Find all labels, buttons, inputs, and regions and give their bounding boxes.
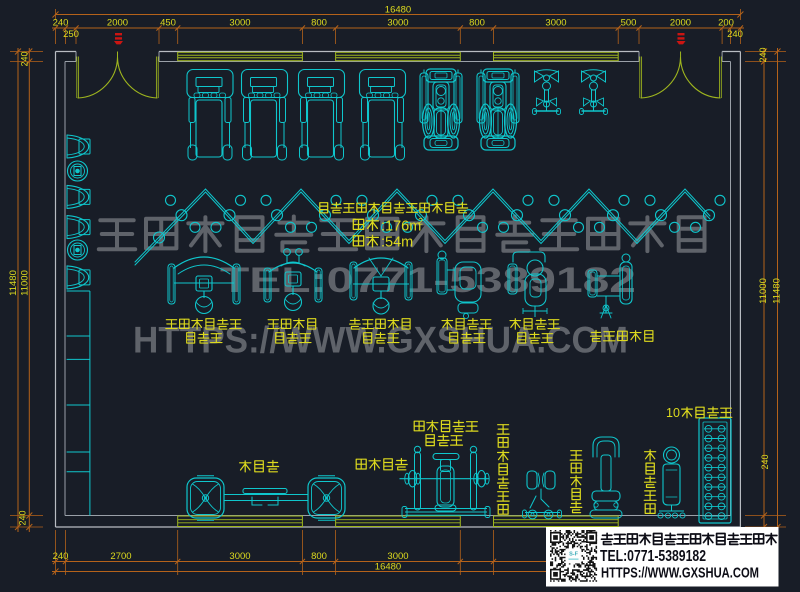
svg-text:240: 240 [760,454,770,469]
svg-text:TEL:0771-5389182: TEL:0771-5389182 [220,261,636,300]
svg-text:16480: 16480 [385,5,411,16]
svg-text:11480: 11480 [772,278,783,304]
svg-text:16480: 16480 [375,562,401,573]
svg-text::176m: :176m [381,219,421,235]
svg-text:800: 800 [311,18,327,29]
svg-text:2000: 2000 [670,18,691,29]
svg-text:11480: 11480 [8,270,19,296]
svg-text:240: 240 [53,18,69,29]
svg-text:HTTPS://WWW.GXSHUA.COM: HTTPS://WWW.GXSHUA.COM [601,565,759,582]
svg-text::54m: :54m [381,235,413,251]
svg-text:3000: 3000 [545,18,566,29]
svg-text:800: 800 [311,551,327,562]
svg-text:3000: 3000 [229,18,250,29]
svg-text:800: 800 [469,18,485,29]
svg-text:11000: 11000 [758,278,769,304]
svg-text:3000: 3000 [229,551,250,562]
svg-text:3000: 3000 [387,18,408,29]
svg-text:240: 240 [53,551,69,562]
svg-text:450: 450 [160,18,176,29]
svg-text:2: 2 [418,217,423,227]
svg-text:S-F: S-F [569,551,579,557]
svg-text:240: 240 [19,51,29,66]
svg-text:3000: 3000 [387,551,408,562]
svg-text:2700: 2700 [110,551,131,562]
svg-text:2000: 2000 [107,18,128,29]
svg-text:10: 10 [666,406,680,420]
svg-text:240: 240 [727,29,743,40]
svg-text:250: 250 [63,29,79,40]
svg-text:240: 240 [17,510,27,525]
svg-text:200: 200 [718,18,734,29]
svg-text:240: 240 [758,47,768,62]
svg-text:TEL:0771-5389182: TEL:0771-5389182 [600,548,706,565]
svg-text:500: 500 [621,18,637,29]
svg-text:11000: 11000 [19,270,30,296]
